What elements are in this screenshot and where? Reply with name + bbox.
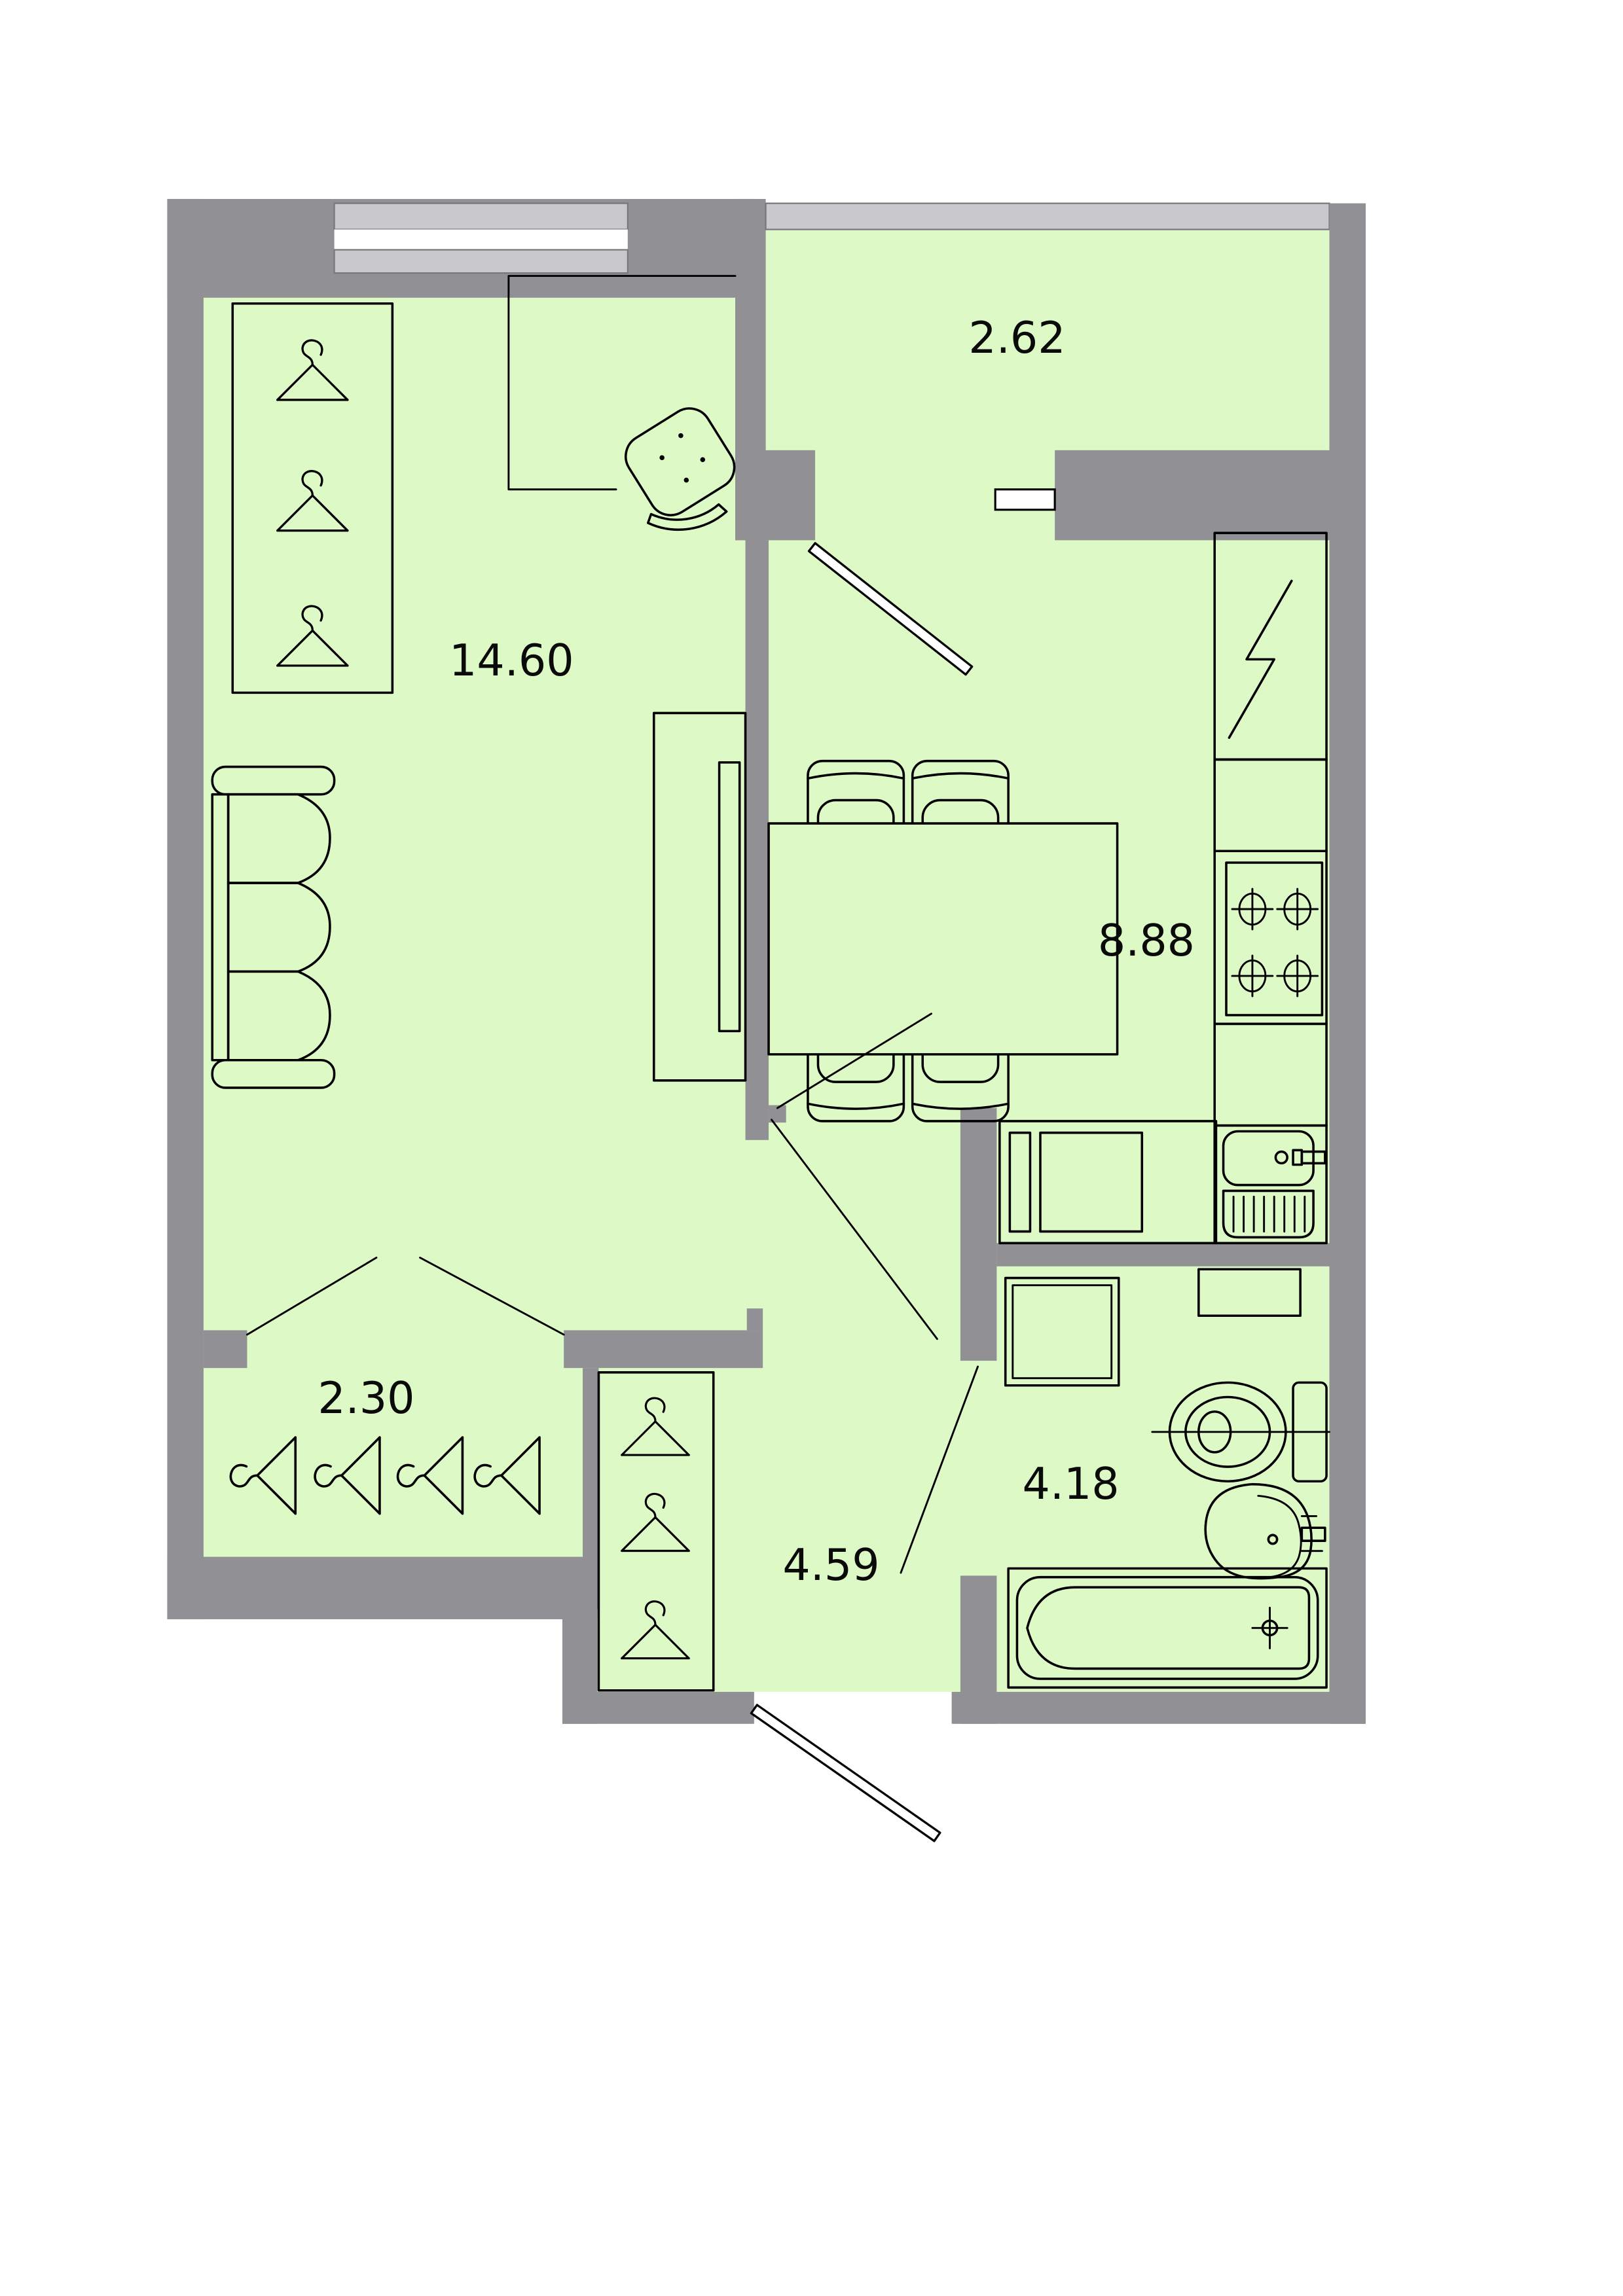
wall-kitchen-top [1055, 450, 1366, 541]
living-room-label: 14.60 [449, 635, 574, 686]
wall-bath-left-upper [960, 1108, 996, 1361]
window-glazing-inner [335, 250, 628, 274]
wall-entry-right [952, 1692, 1366, 1724]
wall-interior-living [746, 540, 769, 1139]
bathroom-label: 4.18 [1022, 1458, 1119, 1509]
balcony-glazing [766, 204, 1330, 230]
wall-hall-top-stub [747, 1308, 763, 1330]
window-pane [335, 230, 628, 250]
wall-bath-left-lower [960, 1575, 996, 1723]
wall-closet-bottom [167, 1557, 597, 1619]
kitchen-label: 8.88 [1098, 915, 1195, 966]
entrance-door-leaf [751, 1705, 939, 1841]
wall-right [1330, 204, 1366, 1724]
balcony-label: 2.62 [968, 312, 1065, 363]
dining-table [769, 823, 1118, 1054]
floor-plan-page: 14.60 2.62 8.88 2.30 4.59 4.18 [0, 0, 1623, 2296]
window [335, 204, 628, 274]
window-glazing-outer [335, 204, 628, 230]
balcony-service-window [995, 490, 1055, 510]
floor-plan-drawing: 14.60 2.62 8.88 2.30 4.59 4.18 [0, 0, 1623, 2296]
wall-hall-top [564, 1330, 763, 1368]
wall-bath-top [996, 1243, 1329, 1266]
wall-left [167, 199, 203, 1619]
wall-entry-left [562, 1692, 754, 1724]
exterior-cutout [157, 1619, 562, 1808]
wall-balcony-divider-pier [735, 450, 815, 541]
closet-label: 2.30 [318, 1372, 414, 1424]
wall-closet-top-left [204, 1330, 247, 1368]
hallway-label: 4.59 [782, 1539, 879, 1590]
